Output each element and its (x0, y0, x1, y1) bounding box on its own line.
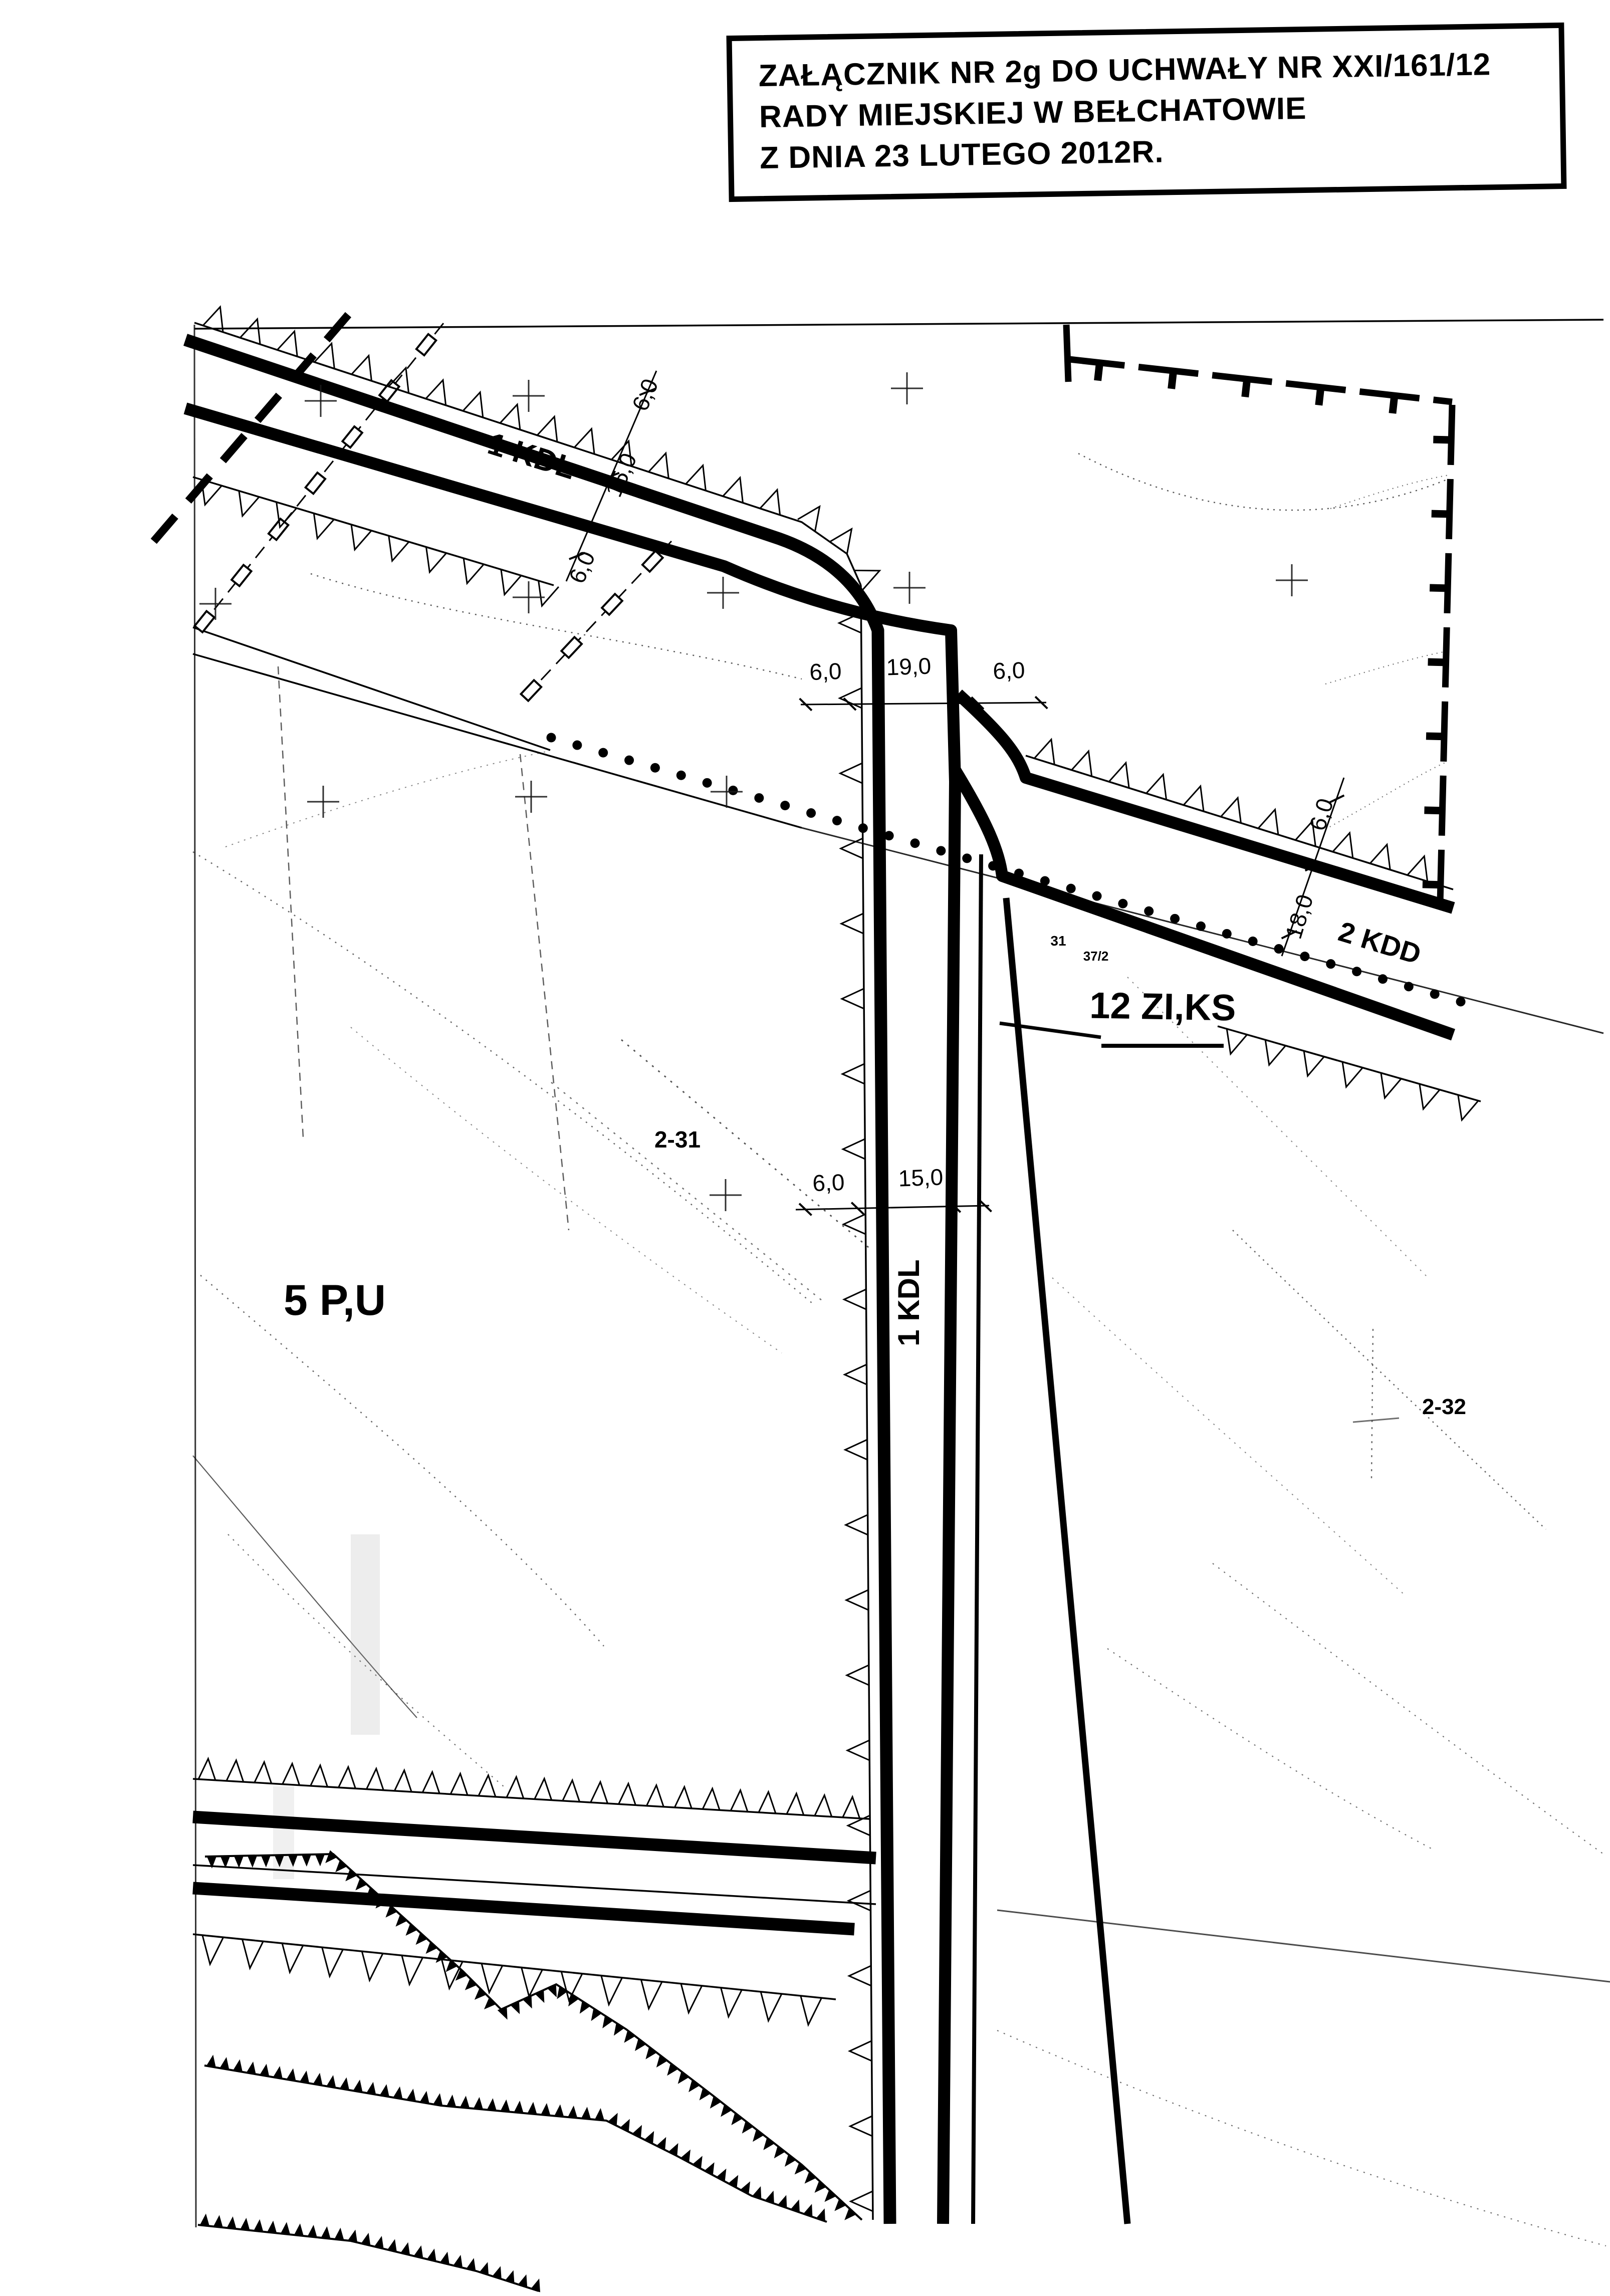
rect-loop-boundary-lines (194, 323, 671, 701)
road-edge-bands (185, 325, 1453, 2224)
dim-label-18-0: 18,0 (1280, 891, 1318, 942)
area-label-2-32: 2-32 (1422, 1395, 1466, 1419)
parcel-label-37-2: 37/2 (1083, 949, 1109, 964)
zone-label-1kdl-diagonal: 1 KDL (484, 426, 580, 487)
zone-label-12ziks: 12 ZI,KS (1089, 984, 1236, 1028)
parcel-label-31: 31 (1050, 933, 1066, 949)
dim-label-6-0-b: 6,0 (564, 547, 600, 587)
zone-label-5pu: 5 P,U (284, 1276, 386, 1324)
dim-label-15-0-b: 15,0 (898, 1164, 944, 1191)
dim-label-19-0: 19,0 (886, 652, 932, 680)
dim-label-6-0-c: 6,0 (809, 658, 842, 685)
scanned-plan-page: ZAŁĄCZNIK NR 2g DO UCHWAŁY NR XXI/161/12… (0, 0, 1610, 2296)
dim-label-6-0-e: 6,0 (812, 1169, 845, 1196)
zone-label-1kdl-vertical: 1 KDL (892, 1259, 926, 1346)
area-label-2-31: 2-31 (654, 1126, 701, 1153)
dim-label-6-0-a: 6,0 (627, 375, 663, 414)
administrative-boundary-ladder (1065, 359, 1452, 903)
zone-label-2kdd: 2 KDD (1335, 915, 1425, 970)
zoning-map-canvas: 1 KDL1 KDL2 KDD12 ZI,KS5 P,U2-312-323137… (0, 0, 1610, 2296)
contour-and-cadastral-lines (193, 453, 1606, 2246)
dim-label-6-0-d: 6,0 (993, 657, 1026, 684)
